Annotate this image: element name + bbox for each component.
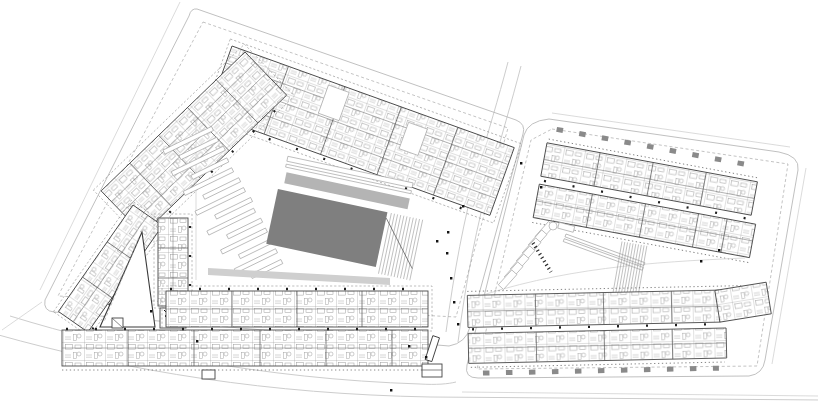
corner-kiosk (422, 364, 442, 377)
site-plan-canvas (0, 0, 818, 403)
site-plan-page (0, 0, 818, 403)
south-row-north (162, 286, 432, 331)
utility-box (202, 370, 215, 379)
turning-circle (549, 222, 557, 230)
south-row-south (62, 329, 428, 370)
